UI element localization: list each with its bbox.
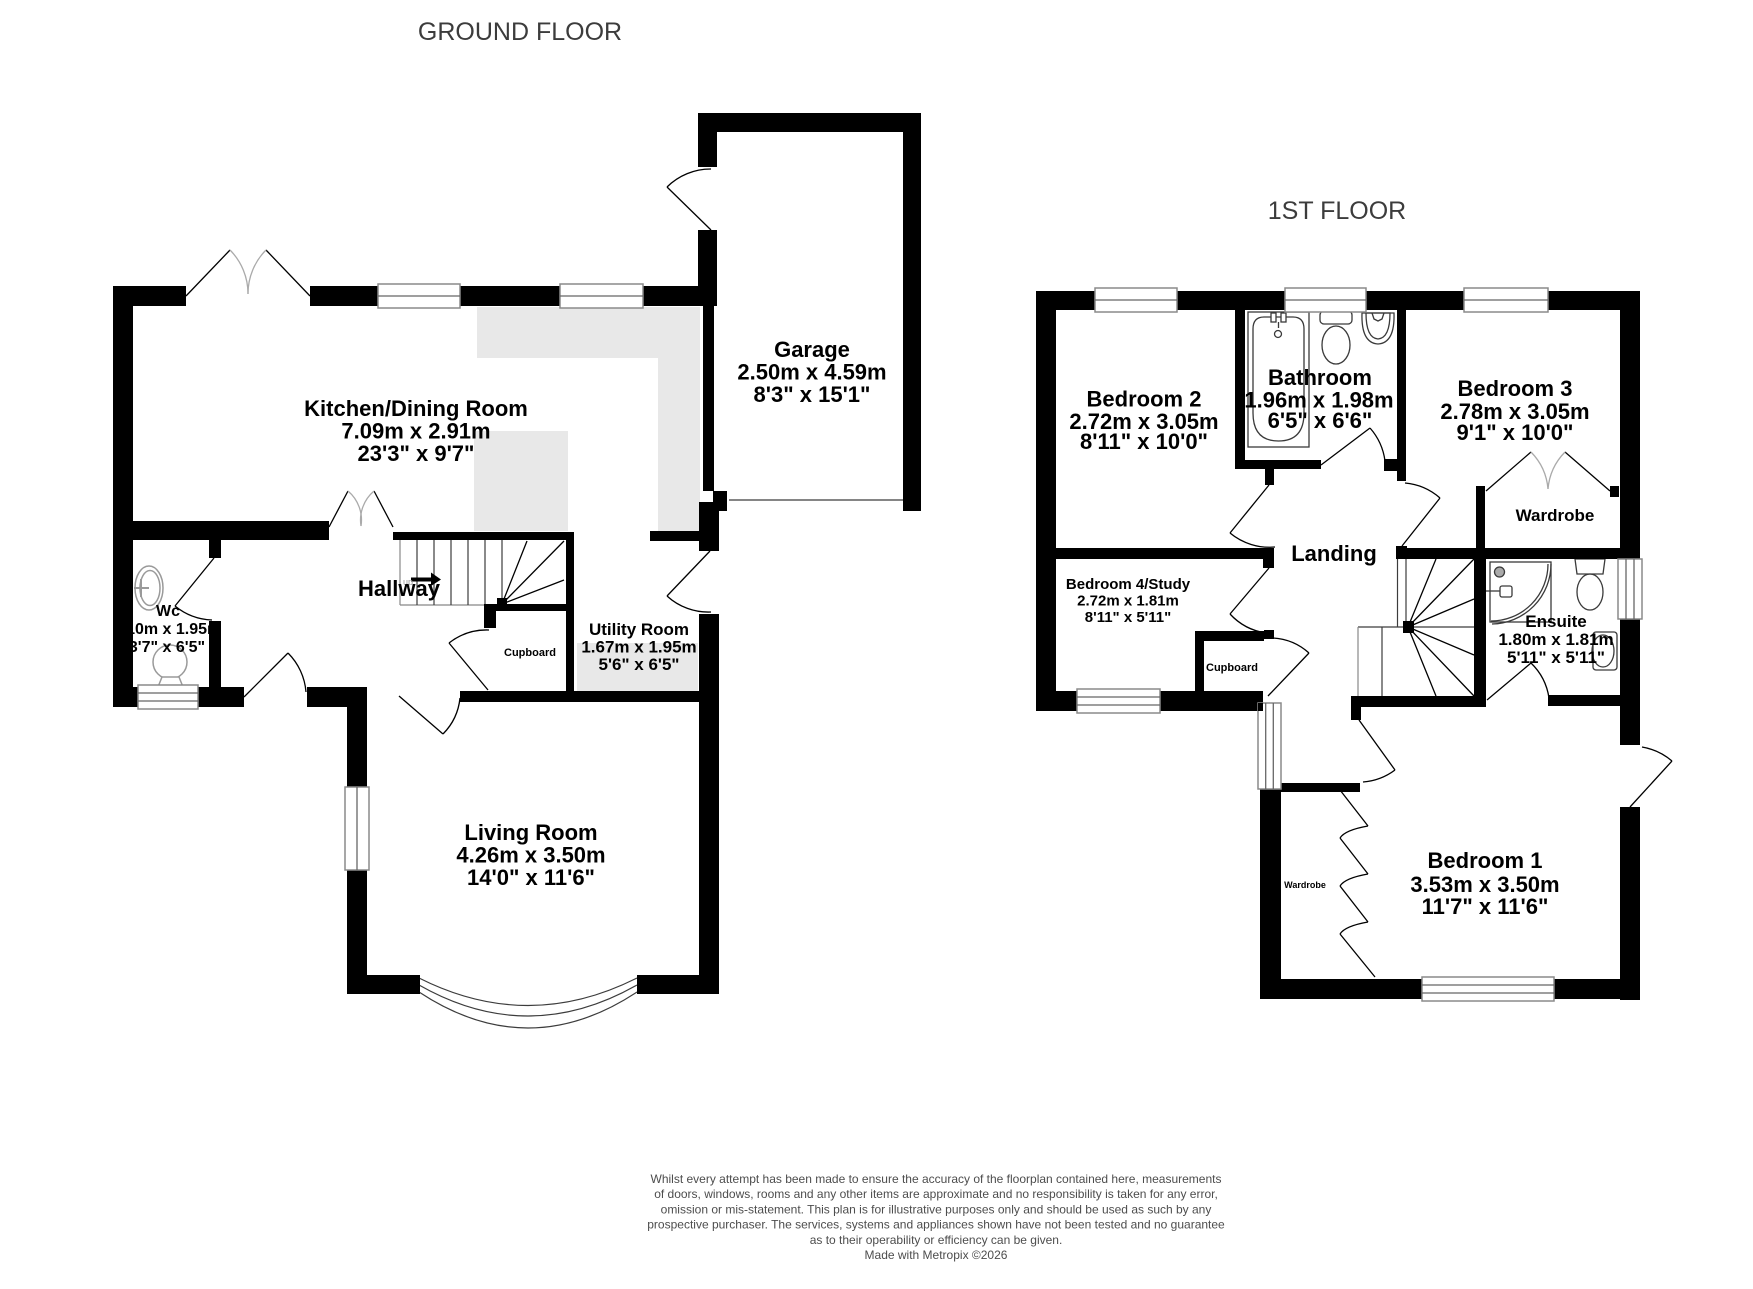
svg-text:Cupboard: Cupboard [1206,662,1258,674]
svg-text:Wardrobe: Wardrobe [1516,506,1595,525]
svg-text:Made with Metropix ©2026: Made with Metropix ©2026 [865,1248,1008,1262]
svg-text:as to their operability or eff: as to their operability or efficiency ca… [810,1233,1063,1247]
svg-text:Bedroom 2: Bedroom 2 [1087,387,1202,412]
svg-text:Wardrobe: Wardrobe [1284,880,1326,890]
svg-text:8'11" x 10'0": 8'11" x 10'0" [1080,429,1208,454]
svg-text:14'0" x 11'6": 14'0" x 11'6" [467,865,595,890]
svg-text:Bedroom 1: Bedroom 1 [1428,848,1543,873]
svg-text:2.72m x 1.81m: 2.72m x 1.81m [1077,593,1179,610]
svg-text:Bedroom 4/Study: Bedroom 4/Study [1066,576,1191,593]
svg-text:of doors, windows, rooms and a: of doors, windows, rooms and any other i… [654,1187,1218,1201]
svg-text:Hallway: Hallway [358,576,441,601]
svg-text:Cupboard: Cupboard [504,647,556,659]
svg-text:Kitchen/Dining Room: Kitchen/Dining Room [304,396,528,421]
svg-text:omission or mis-statement. Thi: omission or mis-statement. This plan is … [661,1202,1212,1216]
svg-text:Bathroom: Bathroom [1268,365,1372,390]
svg-text:Utility Room: Utility Room [589,620,689,639]
svg-text:1.67m x 1.95m: 1.67m x 1.95m [581,638,696,657]
svg-text:1.80m x 1.81m: 1.80m x 1.81m [1498,630,1613,649]
svg-text:GROUND FLOOR: GROUND FLOOR [418,18,622,46]
svg-text:6'5" x 6'6": 6'5" x 6'6" [1268,408,1373,433]
svg-text:8'11" x 5'11": 8'11" x 5'11" [1085,609,1171,626]
svg-text:23'3" x 9'7": 23'3" x 9'7" [358,441,475,466]
svg-text:1ST FLOOR: 1ST FLOOR [1268,197,1406,225]
svg-text:7.09m x 2.91m: 7.09m x 2.91m [341,419,490,444]
svg-text:11'7" x 11'6": 11'7" x 11'6" [1422,894,1549,919]
svg-text:Garage: Garage [774,337,850,362]
svg-text:4.26m x 3.50m: 4.26m x 3.50m [456,843,605,868]
svg-text:Ensuite: Ensuite [1525,612,1586,631]
svg-text:prospective purchaser. The ser: prospective purchaser. The services, sys… [647,1218,1225,1232]
svg-text:Wc: Wc [156,603,180,620]
svg-text:2.50m x 4.59m: 2.50m x 4.59m [737,360,886,385]
svg-text:Bedroom 3: Bedroom 3 [1458,376,1573,401]
svg-text:Living Room: Living Room [464,820,597,845]
svg-text:3'7" x 6'5": 3'7" x 6'5" [129,639,205,656]
svg-text:Whilst every attempt has been: Whilst every attempt has been made to en… [651,1172,1222,1186]
svg-text:5'11" x 5'11": 5'11" x 5'11" [1507,648,1605,667]
svg-text:5'6" x 6'5": 5'6" x 6'5" [599,655,680,674]
svg-text:Landing: Landing [1291,541,1377,566]
svg-text:8'3" x 15'1": 8'3" x 15'1" [754,382,871,407]
svg-text:9'1" x 10'0": 9'1" x 10'0" [1457,420,1574,445]
